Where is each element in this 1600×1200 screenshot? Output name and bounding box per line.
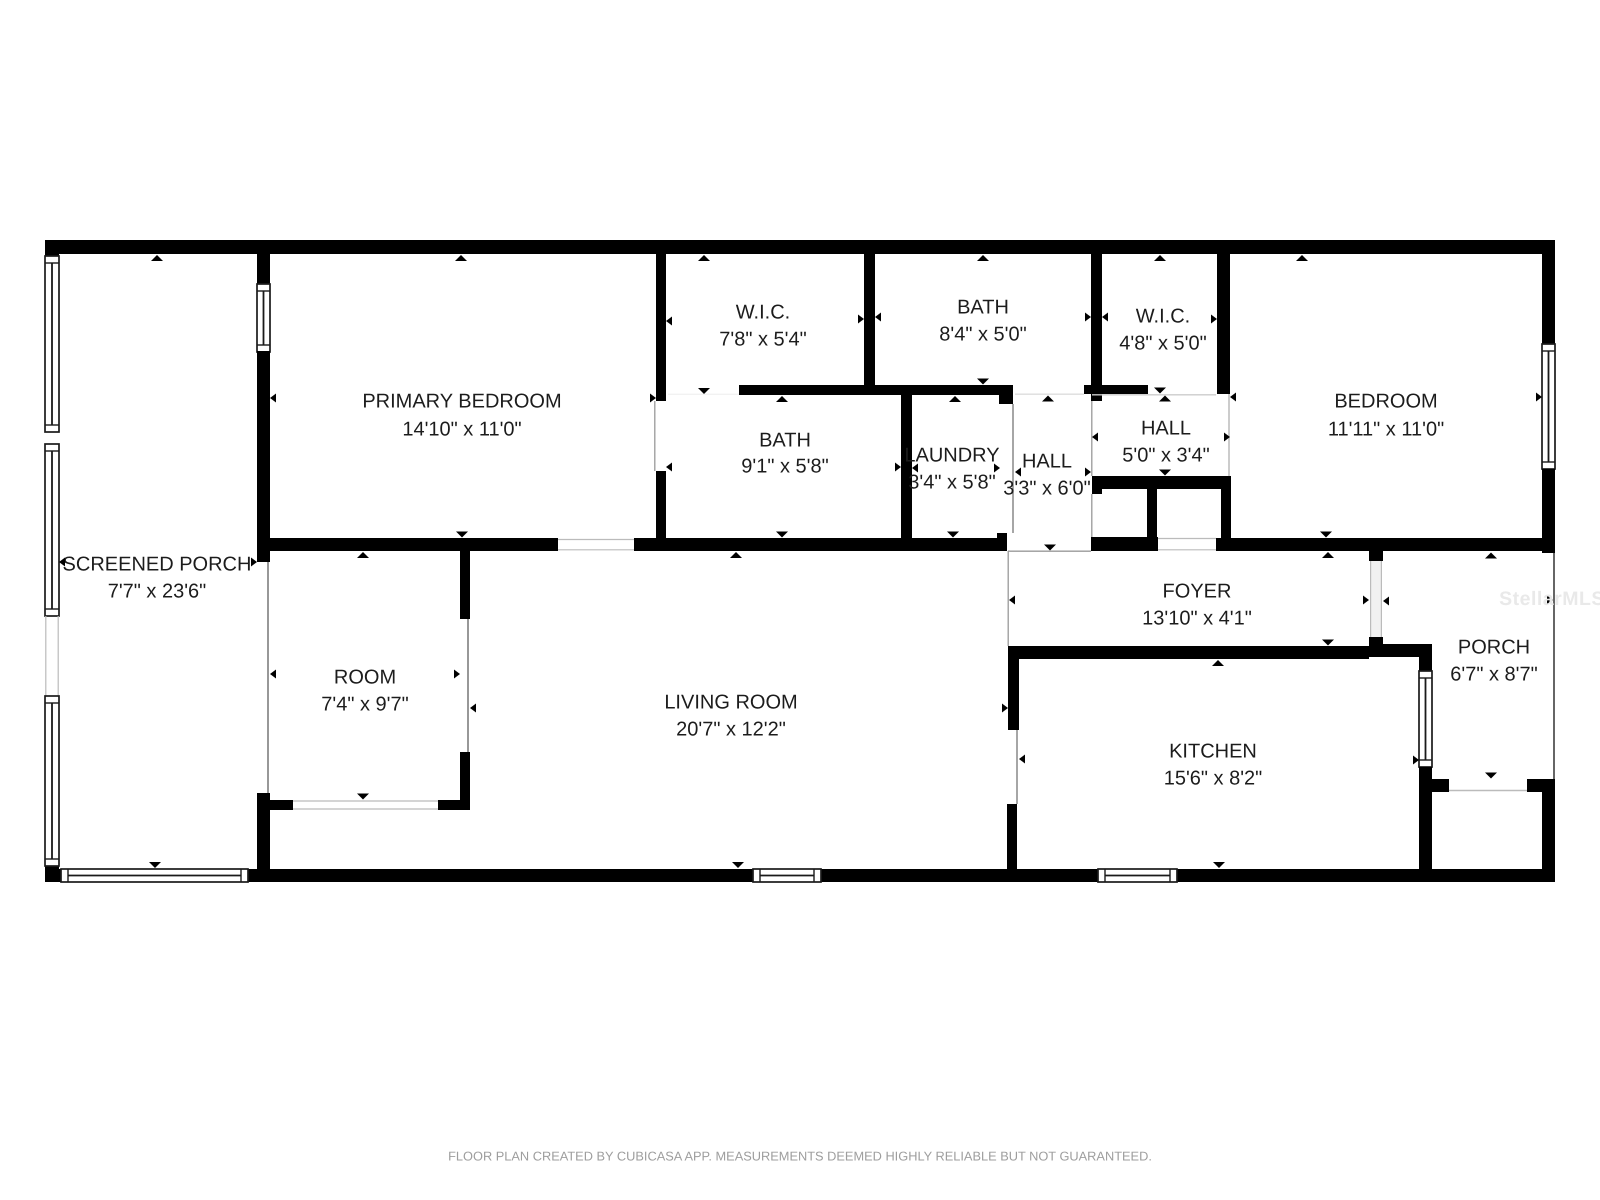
- svg-text:7'7" x 23'6": 7'7" x 23'6": [108, 580, 207, 602]
- svg-text:15'6" x 8'2": 15'6" x 8'2": [1164, 767, 1263, 789]
- svg-text:W.I.C.: W.I.C.: [736, 301, 790, 323]
- svg-text:FLOOR PLAN CREATED BY CUBICASA: FLOOR PLAN CREATED BY CUBICASA APP. MEAS…: [448, 1148, 1152, 1163]
- svg-text:ROOM: ROOM: [334, 666, 396, 688]
- svg-text:14'10" x 11'0": 14'10" x 11'0": [402, 418, 521, 440]
- svg-text:9'1" x 5'8": 9'1" x 5'8": [741, 455, 828, 477]
- svg-text:11'11" x 11'0": 11'11" x 11'0": [1328, 418, 1444, 440]
- svg-text:HALL: HALL: [1022, 450, 1072, 472]
- svg-text:4'8" x 5'0": 4'8" x 5'0": [1119, 332, 1206, 354]
- svg-text:SCREENED PORCH: SCREENED PORCH: [63, 553, 252, 575]
- svg-text:PRIMARY BEDROOM: PRIMARY BEDROOM: [362, 390, 561, 412]
- svg-text:PORCH: PORCH: [1458, 636, 1530, 658]
- svg-text:HALL: HALL: [1141, 417, 1191, 439]
- svg-text:W.I.C.: W.I.C.: [1136, 305, 1190, 327]
- svg-text:BATH: BATH: [759, 429, 811, 451]
- svg-text:13'10" x 4'1": 13'10" x 4'1": [1142, 607, 1252, 629]
- svg-text:20'7" x 12'2": 20'7" x 12'2": [676, 718, 786, 740]
- svg-text:5'0" x 3'4": 5'0" x 3'4": [1122, 444, 1209, 466]
- svg-text:StellarMLS: StellarMLS: [1499, 588, 1600, 610]
- svg-text:3'3" x 6'0": 3'3" x 6'0": [1003, 477, 1090, 499]
- svg-text:6'7" x 8'7": 6'7" x 8'7": [1450, 663, 1537, 685]
- svg-text:FOYER: FOYER: [1163, 580, 1232, 602]
- svg-text:7'8" x 5'4": 7'8" x 5'4": [719, 328, 806, 350]
- svg-text:BEDROOM: BEDROOM: [1334, 390, 1437, 412]
- svg-text:7'4" x 9'7": 7'4" x 9'7": [321, 693, 408, 715]
- svg-text:3'4" x 5'8": 3'4" x 5'8": [908, 471, 995, 493]
- svg-text:LAUNDRY: LAUNDRY: [904, 444, 999, 466]
- svg-text:KITCHEN: KITCHEN: [1169, 740, 1257, 762]
- svg-text:BATH: BATH: [957, 296, 1009, 318]
- svg-text:8'4" x 5'0": 8'4" x 5'0": [939, 323, 1026, 345]
- svg-text:LIVING ROOM: LIVING ROOM: [664, 691, 797, 713]
